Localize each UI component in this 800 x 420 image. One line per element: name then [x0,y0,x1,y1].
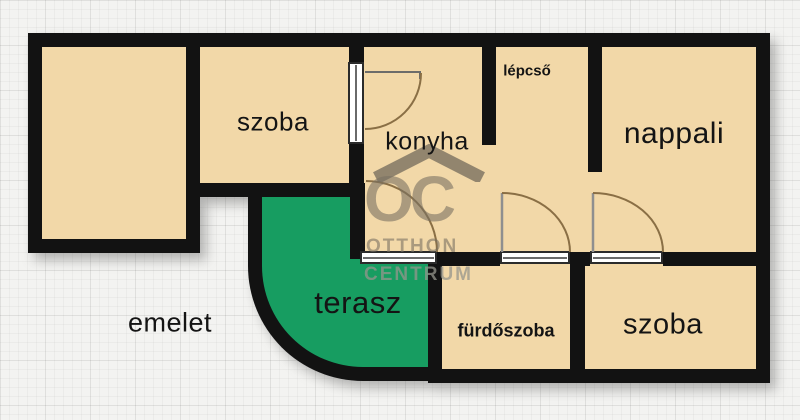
label-szoba-bottom: szoba [623,309,703,342]
watermark-logo: OC [364,162,452,236]
watermark-line2: CENTRUM [364,264,473,286]
floorplan-page: { "plan": { "floor_label": "emelet", "ro… [0,0,800,420]
door-leaf-konyha [365,72,420,79]
label-furdoszoba: fürdőszoba [458,321,555,342]
label-emelet: emelet [128,308,212,339]
door-arc-bathroom [502,193,570,252]
label-lepcso: lépcső [503,63,551,80]
watermark-line1: OTTHON [366,236,458,258]
door-arc-szoba [593,193,663,252]
label-terasz: terasz [314,285,401,321]
floorplan-drawing: OC OTTHON CENTRUM szoba konyha lépcső na… [0,0,800,420]
label-konyha: konyha [385,128,469,157]
door-arc-konyha [365,73,421,129]
label-nappali: nappali [624,117,724,151]
label-szoba-top: szoba [237,107,309,138]
